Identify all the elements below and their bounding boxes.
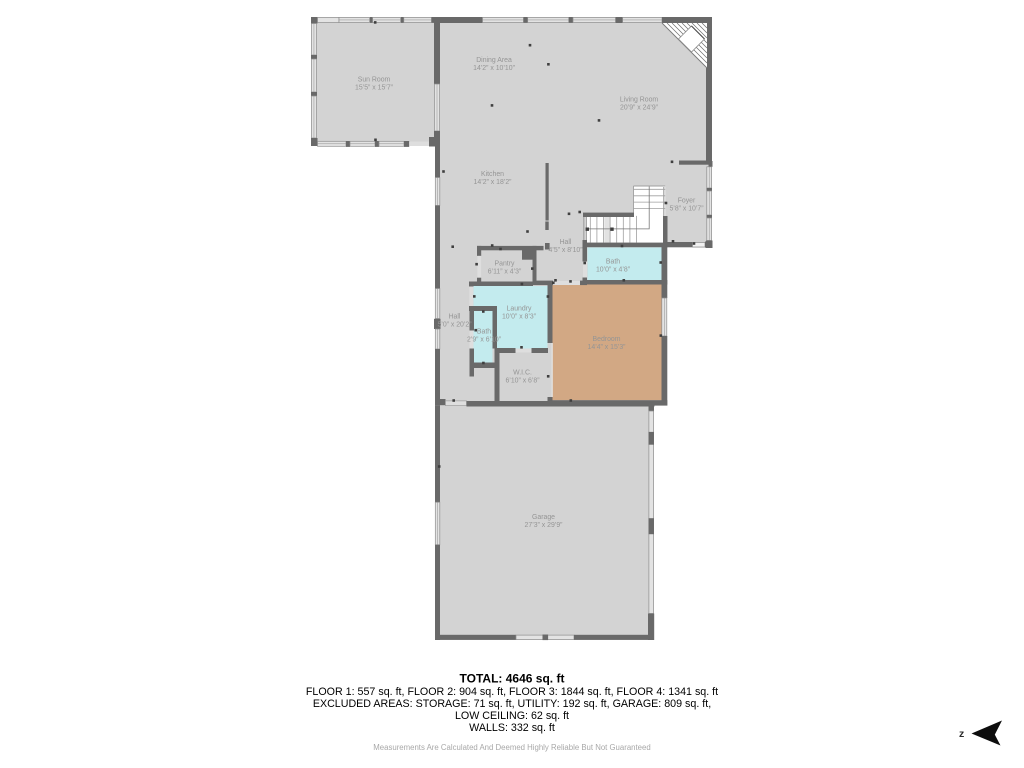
svg-text:Garage: Garage — [532, 514, 555, 521]
svg-text:6’11” x 4’3”: 6’11” x 4’3” — [488, 269, 522, 276]
svg-text:6’10” x 6’8”: 6’10” x 6’8” — [505, 378, 540, 385]
svg-text:Laundry: Laundry — [507, 306, 532, 313]
svg-text:14’4” x 15’3”: 14’4” x 15’3” — [588, 344, 627, 351]
svg-text:W.I.C.: W.I.C. — [513, 370, 532, 377]
svg-text:Bath: Bath — [477, 329, 491, 336]
svg-text:20’9” x 24’9”: 20’9” x 24’9” — [620, 105, 659, 112]
svg-text:Bedroom: Bedroom — [593, 336, 621, 343]
svg-text:15’5” x 15’7”: 15’5” x 15’7” — [355, 85, 394, 92]
svg-text:FLOOR 1: 557 sq. ft, FLOOR 2:: FLOOR 1: 557 sq. ft, FLOOR 2: 904 sq. ft… — [306, 686, 718, 698]
svg-text:Measurements Are Calculated An: Measurements Are Calculated And Deemed H… — [373, 743, 650, 752]
svg-text:14’2” x 10’10”: 14’2” x 10’10” — [473, 65, 515, 72]
svg-text:TOTAL: 4646 sq. ft: TOTAL: 4646 sq. ft — [460, 672, 565, 686]
svg-text:5’0” x 20’2”: 5’0” x 20’2” — [437, 322, 472, 329]
svg-text:4’5” x 8’10”: 4’5” x 8’10” — [548, 247, 583, 254]
svg-text:z: z — [959, 728, 964, 740]
svg-text:Pantry: Pantry — [495, 261, 515, 268]
svg-text:2’9” x 6’10”: 2’9” x 6’10” — [467, 337, 502, 344]
svg-text:5’8” x 10’7”: 5’8” x 10’7” — [669, 206, 704, 213]
svg-text:Hall: Hall — [449, 314, 461, 321]
svg-text:Foyer: Foyer — [678, 198, 696, 205]
svg-text:Dining Area: Dining Area — [476, 57, 512, 64]
svg-text:WALLS: 332 sq. ft: WALLS: 332 sq. ft — [469, 722, 555, 734]
svg-text:27’3” x 29’9”: 27’3” x 29’9” — [525, 522, 564, 529]
svg-text:10’0” x 4’8”: 10’0” x 4’8” — [596, 267, 631, 274]
svg-text:LOW CEILING: 62 sq. ft: LOW CEILING: 62 sq. ft — [455, 710, 569, 722]
svg-text:10’0” x 8’3”: 10’0” x 8’3” — [502, 314, 537, 321]
svg-text:Bath: Bath — [606, 259, 620, 266]
svg-text:Sun Room: Sun Room — [358, 77, 391, 84]
svg-text:EXCLUDED AREAS: STORAGE: 71 sq: EXCLUDED AREAS: STORAGE: 71 sq. ft, UTIL… — [313, 698, 711, 710]
svg-text:Living Room: Living Room — [620, 97, 659, 104]
svg-text:Kitchen: Kitchen — [481, 171, 504, 178]
svg-text:14’2” x 18’2”: 14’2” x 18’2” — [474, 179, 513, 186]
svg-text:Hall: Hall — [560, 239, 572, 246]
